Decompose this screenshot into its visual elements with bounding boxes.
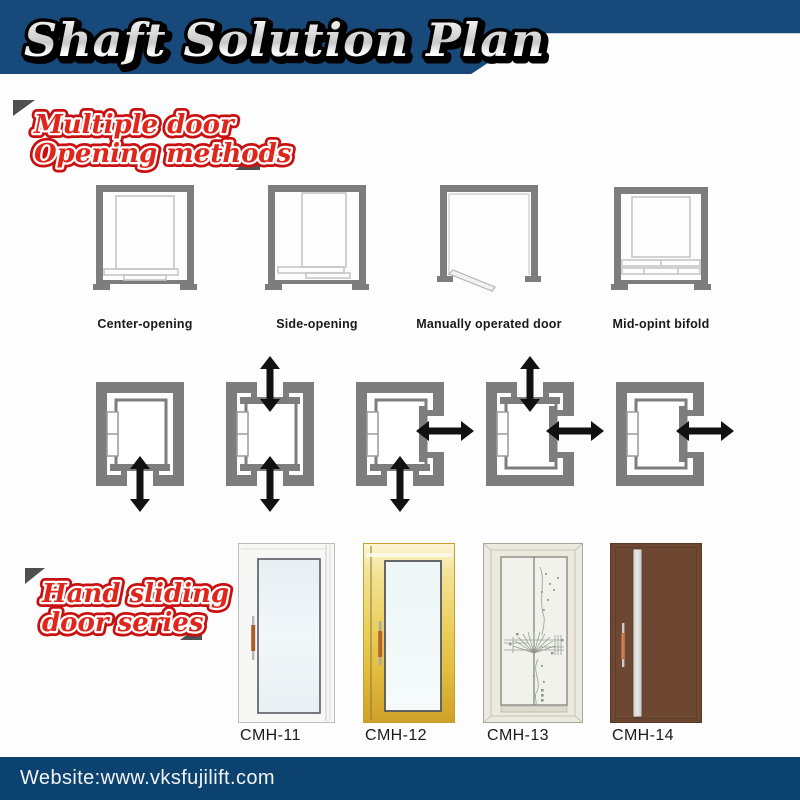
shaft-diagram-icon	[94, 352, 186, 516]
section-heading-opening-methods: Multiple door Opening methods Multiple d…	[13, 96, 265, 176]
poster: Shaft Solution Plan Shaft Solution Plan …	[0, 0, 800, 800]
shaft-layouts-row	[94, 352, 706, 516]
manual-door-diagram-icon	[434, 183, 544, 297]
shaft-layout-side-opening	[614, 352, 706, 516]
door-opening-methods-row: Center-opening Side-opening	[59, 183, 747, 331]
product-label-cmh-14: CMH-14	[612, 727, 674, 745]
door-type-label: Manually operated door	[416, 317, 561, 331]
shaft-layout-through-opening	[224, 352, 316, 516]
product-label-cmh-13: CMH-13	[487, 727, 549, 745]
door-type-manually-operated: Manually operated door	[403, 183, 575, 331]
door-cmh-13	[483, 543, 583, 723]
etched-fan	[513, 631, 555, 653]
shaft-diagram-icon	[614, 352, 706, 516]
door-handle	[379, 621, 381, 665]
etched-pattern	[504, 567, 564, 705]
door-cmh-11	[238, 543, 335, 723]
shaft-layout-front-and-side-opening	[354, 352, 446, 516]
shaft-diagram-icon	[484, 352, 576, 516]
heading-line2: door series	[42, 608, 204, 638]
door-cmh-14	[610, 543, 702, 723]
shaft-layout-front-opening	[94, 352, 186, 516]
door-type-label: Center-opening	[97, 317, 192, 331]
page-title: Shaft Solution Plan Shaft Solution Plan	[16, 2, 576, 80]
door-type-center-opening: Center-opening	[59, 183, 231, 331]
door-handle	[252, 616, 254, 660]
product-label-cmh-12: CMH-12	[365, 727, 427, 745]
bifold-diagram-icon	[606, 183, 716, 297]
heading-line2: Opening methods	[34, 139, 292, 169]
door-type-label: Side-opening	[276, 317, 358, 331]
door-type-label: Mid-opint bifold	[613, 317, 710, 331]
shaft-layout-rear-and-side-opening	[484, 352, 576, 516]
website-url[interactable]: Website:www.vksfujilift.com	[20, 757, 275, 800]
shaft-diagram-icon	[224, 352, 316, 516]
page-title-text: Shaft Solution Plan	[24, 13, 546, 67]
product-label-cmh-11: CMH-11	[240, 727, 301, 745]
heading-line1: Hand sliding	[41, 579, 229, 609]
section-heading-hand-sliding: Hand sliding door series Hand sliding do…	[22, 568, 202, 642]
door-type-mid-point-bifold: Mid-opint bifold	[575, 183, 747, 331]
door-cmh-12	[363, 543, 455, 723]
side-opening-diagram-icon	[262, 183, 372, 297]
heading-line1: Multiple door	[33, 110, 236, 140]
door-type-side-opening: Side-opening	[231, 183, 403, 331]
center-opening-diagram-icon	[90, 183, 200, 297]
shaft-diagram-icon	[354, 352, 446, 516]
door-handle	[622, 623, 624, 667]
